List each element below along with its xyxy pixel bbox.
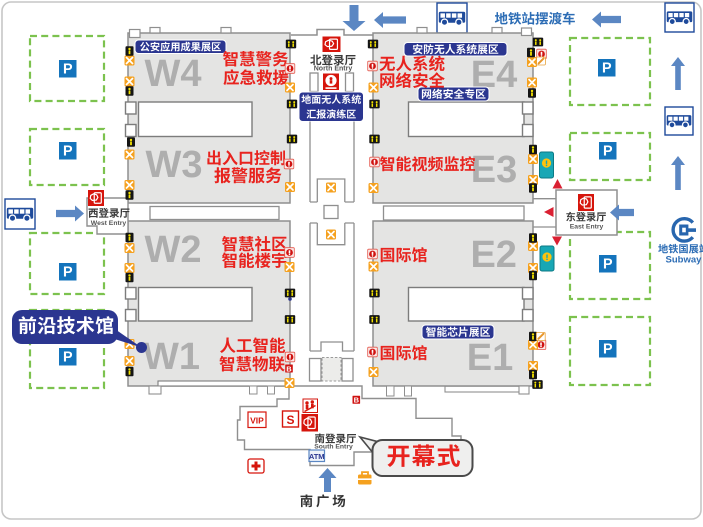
svg-text:W1: W1 [143,336,200,378]
svg-text:North Entry: North Entry [314,66,353,73]
svg-text:West Entry: West Entry [91,220,127,227]
svg-text:East Entry: East Entry [570,223,604,230]
svg-text:P: P [602,61,612,77]
svg-text:P: P [63,350,73,366]
svg-text:P: P [603,342,613,358]
svg-text:ATM: ATM [309,452,325,461]
svg-text:P: P [63,265,73,281]
svg-text:B: B [354,396,360,405]
svg-text:P: P [63,144,73,160]
svg-text:B: B [286,364,292,373]
svg-text:E1: E1 [467,337,513,379]
svg-text:E3: E3 [471,149,517,191]
svg-text:Subway: Subway [666,255,703,266]
svg-text:E2: E2 [470,234,516,276]
svg-text:VIP: VIP [250,416,264,426]
svg-text:W4: W4 [145,53,202,95]
svg-text:P: P [603,257,613,273]
svg-text:W3: W3 [146,144,203,186]
svg-text:P: P [63,62,73,78]
svg-text:W2: W2 [145,229,202,271]
svg-text:P: P [603,144,613,160]
svg-text:S: S [286,413,294,427]
